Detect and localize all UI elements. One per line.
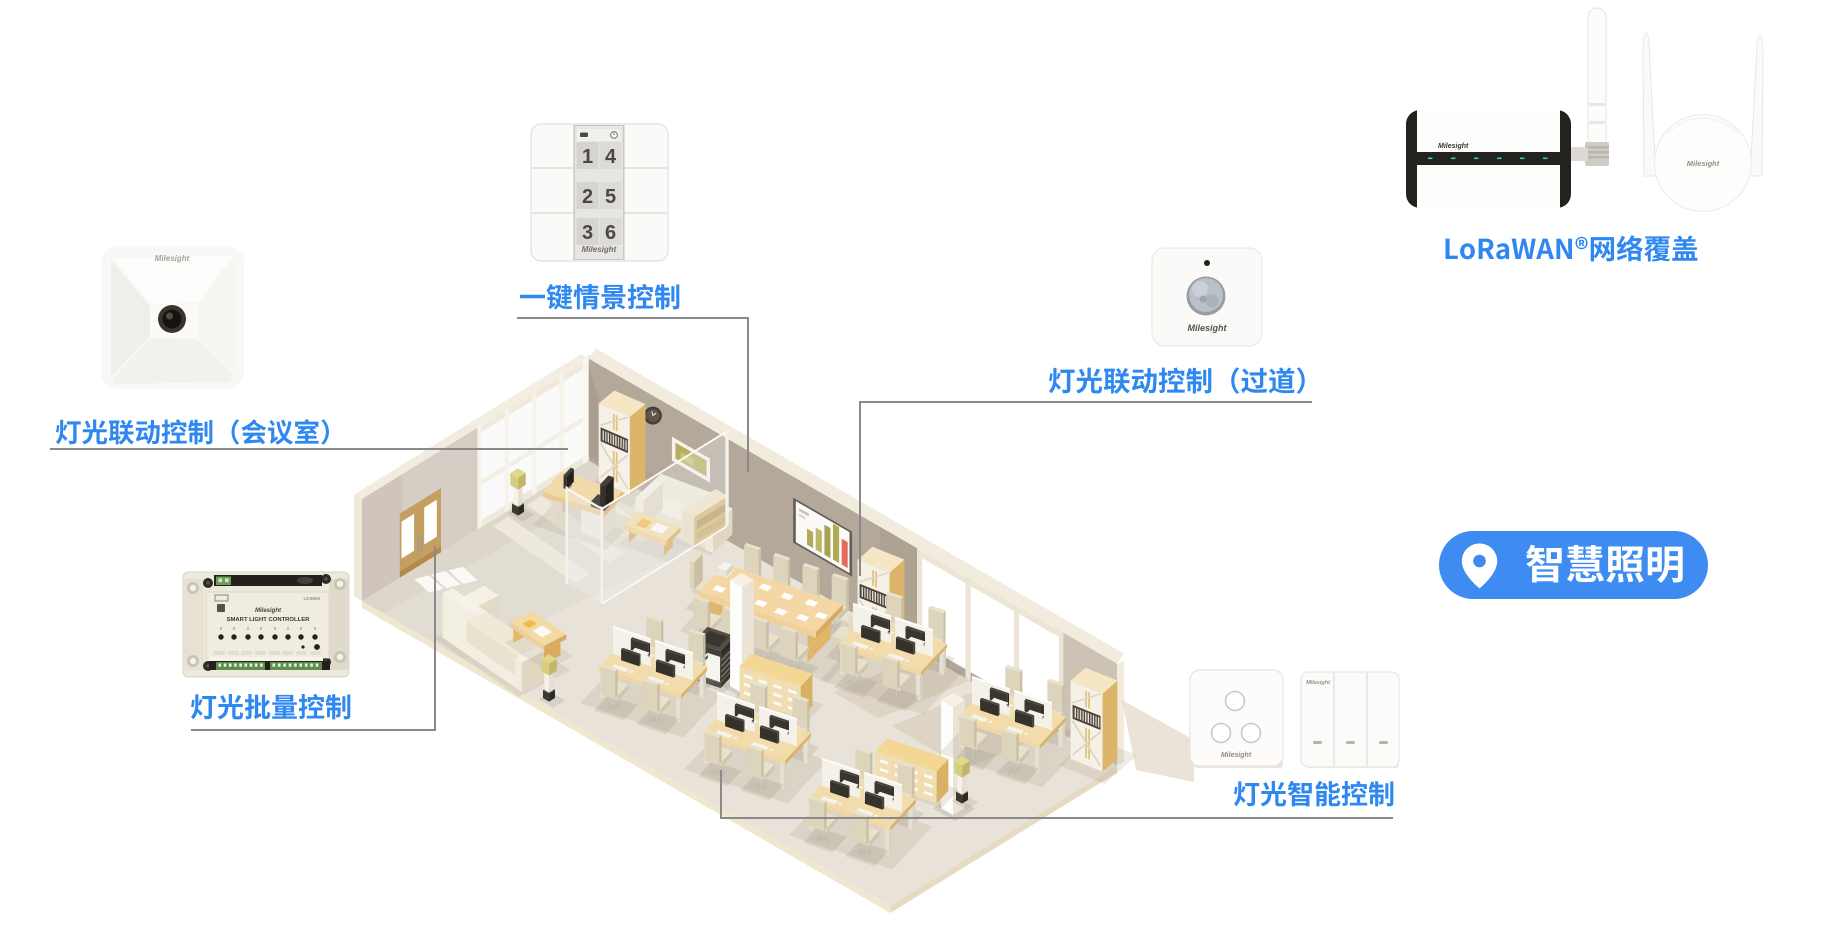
svg-text:Milesight: Milesight: [582, 245, 617, 254]
svg-text:2: 2: [582, 186, 593, 208]
svg-text:Milesight: Milesight: [255, 608, 282, 614]
svg-text:Milesight: Milesight: [1438, 143, 1469, 150]
svg-text:6: 6: [605, 222, 616, 244]
svg-text:3: 3: [582, 222, 593, 244]
svg-text:Milesight: Milesight: [1306, 680, 1331, 686]
svg-text:Milesight: Milesight: [155, 254, 190, 263]
svg-text:5: 5: [605, 186, 616, 208]
svg-text:Milesight: Milesight: [1221, 752, 1252, 759]
svg-text:SMART LIGHT CONTROLLER: SMART LIGHT CONTROLLER: [227, 617, 311, 623]
svg-text:Milesight: Milesight: [1687, 159, 1720, 168]
svg-text:UC8668: UC8668: [303, 596, 320, 601]
svg-text:4: 4: [605, 146, 617, 168]
svg-text:Milesight: Milesight: [1187, 323, 1227, 333]
svg-text:1: 1: [582, 146, 593, 168]
